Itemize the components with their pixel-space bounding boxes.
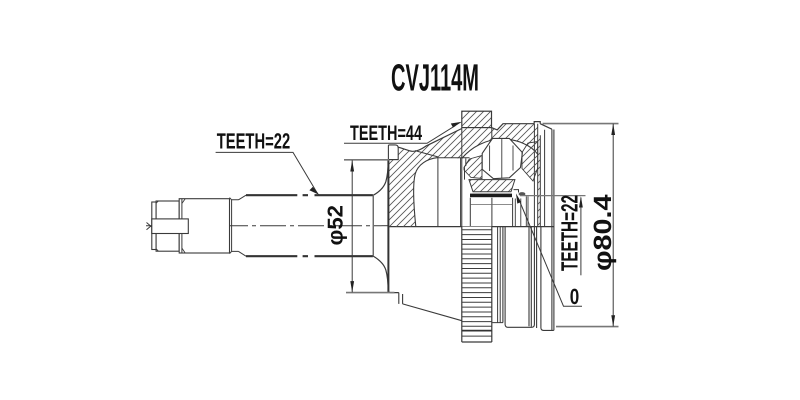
svg-text:TEETH=22: TEETH=22 bbox=[217, 129, 291, 154]
svg-text:0: 0 bbox=[570, 284, 580, 309]
svg-text:CVJ114M: CVJ114M bbox=[391, 58, 479, 100]
svg-text:TEETH=44: TEETH=44 bbox=[350, 122, 422, 145]
svg-text:TEETH=22: TEETH=22 bbox=[557, 195, 583, 271]
svg-text:φ80.4: φ80.4 bbox=[589, 194, 617, 271]
svg-text:φ52: φ52 bbox=[324, 205, 348, 246]
